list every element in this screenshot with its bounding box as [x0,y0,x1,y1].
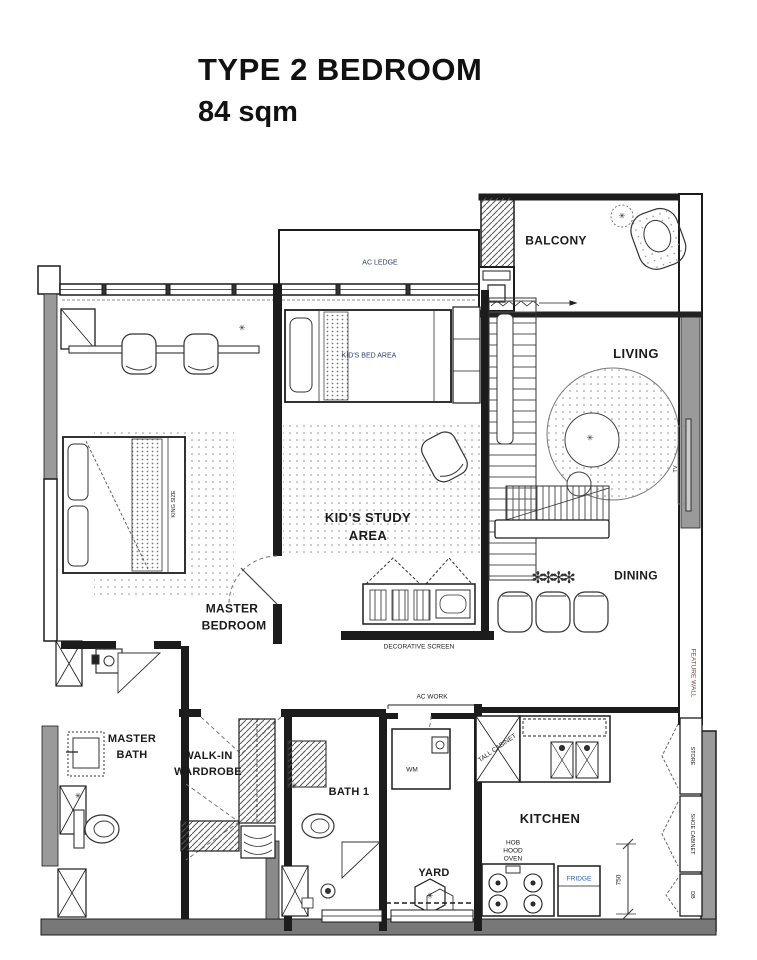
plan-title: TYPE 2 BEDROOM [198,52,482,88]
bath-plant-icon: ✳ [75,792,82,801]
master-bed [63,437,185,573]
kids-side-cabinet [453,307,480,403]
hob-label: HOB [506,841,520,848]
fridge-label: FRIDGE [567,877,592,884]
master-chairs [122,334,218,374]
tv-label: TV [674,465,680,472]
dining-plants-icon: ✻✻✻✻ [531,568,573,588]
master-bath-label-2: BATH [117,750,148,762]
oven-label: OVEN [504,857,522,864]
floor-plan-page: TYPE 2 BEDROOM 84 sqm [0,0,757,960]
master-bedroom-label-2: BEDROOM [202,620,267,633]
master-desk [69,346,259,353]
living-label: LIVING [613,347,659,361]
walkin-label-1: WALK-IN [183,751,232,763]
kids-study-label-2: AREA [349,529,387,543]
wm-label: WM [406,768,418,775]
kids-bed-area-label: KID'S BED AREA [342,352,397,359]
corridor-window [282,866,308,916]
king-size-label: KING SIZE [172,490,178,517]
dining-label: DINING [614,570,658,583]
decorative-screen-label: DECORATIVE SCREEN [384,645,455,652]
yard-label: YARD [418,868,449,880]
walkin-label-2: WARDROBE [174,767,242,779]
living-rug [547,368,679,500]
balcony-planter [481,197,514,267]
hood-label: HOOD [503,849,523,856]
wardrobe-units [181,719,275,858]
db-label: DB [688,891,694,899]
bath1-plant-icon: ✳ [291,782,298,791]
bath1-label: BATH 1 [329,787,370,799]
ac-ledge-label: AC LEDGE [362,259,397,266]
yard-fixtures [322,705,476,922]
store-label: STORE [688,747,694,766]
master-bedroom-label-1: MASTER [206,603,258,616]
shoe-cabinet-label: SHOE CABINET [688,814,694,855]
balcony-label: BALCONY [525,235,586,248]
balcony-plant-icon: ✳ [619,212,626,221]
floor-trap-icon: ✳ [427,892,434,901]
kitchen-label: KITCHEN [520,812,581,826]
decorative-screen-cabinet [363,558,475,624]
kids-study-label-1: KID'S STUDY [325,511,411,525]
dim-750-label: 750 [617,875,624,886]
right-cabinets [662,718,702,916]
ac-work-label: AC WORK [416,695,447,702]
feature-wall-label: FEATURE WALL [689,648,696,697]
floor-plan: BALCONY AC LEDGE KID'S BED AREA LIVING K… [36,186,736,952]
title-block: TYPE 2 BEDROOM 84 sqm [198,52,482,129]
bedroom-plant-icon: ✳ [239,324,246,333]
master-bath-label-1: MASTER [108,734,156,746]
plan-area: 84 sqm [198,96,482,129]
master-wardrobe-box [61,309,95,349]
rug-plant-icon: ✳ [587,434,594,443]
